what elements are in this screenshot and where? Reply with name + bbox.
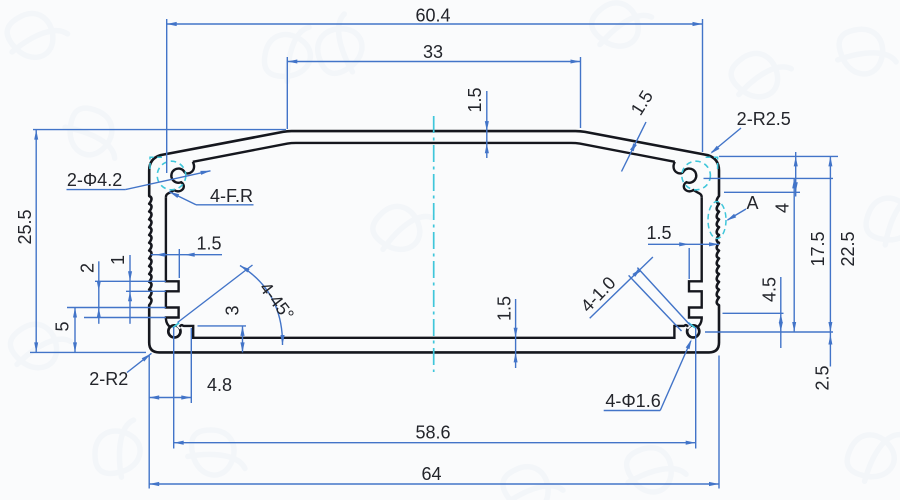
- svg-text:4: 4: [773, 203, 793, 213]
- svg-text:4.5: 4.5: [760, 277, 780, 302]
- svg-text:2-R2.5: 2-R2.5: [737, 109, 791, 129]
- svg-text:2.5: 2.5: [813, 365, 833, 390]
- svg-text:25.5: 25.5: [15, 209, 35, 244]
- svg-text:4-F.R: 4-F.R: [210, 186, 253, 206]
- svg-text:1.5: 1.5: [465, 87, 485, 112]
- svg-text:5: 5: [53, 321, 73, 331]
- svg-text:4.8: 4.8: [207, 375, 232, 395]
- svg-text:33: 33: [423, 42, 443, 62]
- svg-text:1.5: 1.5: [495, 296, 515, 321]
- svg-text:17.5: 17.5: [808, 231, 828, 266]
- svg-text:1.5: 1.5: [196, 234, 221, 254]
- svg-text:2-Φ4.2: 2-Φ4.2: [67, 170, 122, 190]
- svg-text:1.5: 1.5: [646, 223, 671, 243]
- svg-text:4-Φ1.6: 4-Φ1.6: [605, 391, 660, 411]
- svg-text:58.6: 58.6: [415, 423, 450, 443]
- svg-text:A: A: [746, 193, 758, 213]
- svg-text:1: 1: [108, 255, 128, 265]
- svg-text:60.4: 60.4: [415, 6, 450, 26]
- svg-text:2: 2: [78, 263, 98, 273]
- svg-text:2-R2: 2-R2: [89, 369, 128, 389]
- svg-text:22.5: 22.5: [838, 231, 858, 266]
- svg-text:3: 3: [223, 305, 243, 315]
- svg-text:64: 64: [421, 464, 441, 484]
